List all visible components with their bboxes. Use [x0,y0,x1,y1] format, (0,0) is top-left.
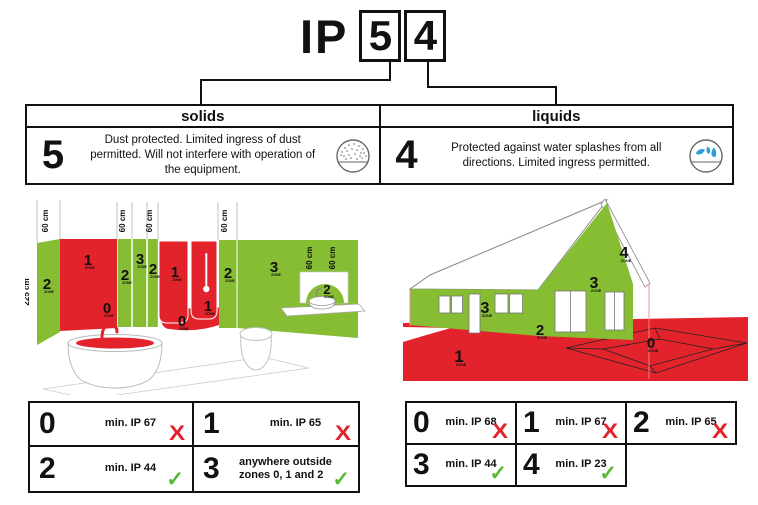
measure-label: 60 cm [41,210,50,233]
measure-label: 60 cm [220,210,229,233]
connector-line [200,79,202,105]
title-solids-digit-box: 5 [359,10,401,62]
allowed-mark: ✓ [332,469,350,490]
zone-caption: ZONE [456,363,467,367]
table-cell: 3 anywhere outside zones 0, 1 and 2 ✓ [194,447,358,491]
not-allowed-mark: X [712,421,728,442]
toilet-seat [240,328,272,341]
zone-number: 3 [203,452,233,486]
bathroom-ip-table: 0 min. IP 67 X 1 min. IP 65 X 2 min. IP … [28,401,360,493]
table-cell: 1 min. IP 65 X [194,403,358,447]
ratings-table: solids 5 Dust protected. Limited ingress… [25,104,734,185]
zone-number: 0 [413,406,439,440]
zone-caption: ZONE [104,314,114,318]
allowed-mark: ✓ [166,469,184,490]
bathtub-water [76,338,154,349]
measure-label: 60 cm [305,247,314,270]
zone-caption: ZONE [150,275,160,279]
page-title: IP 5 4 [300,8,446,64]
connector-line [389,62,391,80]
solids-description: Dust protected. Limited ingress of dust … [79,133,327,177]
not-allowed-mark: X [169,423,185,444]
liquids-digit: 4 [381,133,433,178]
dust-circle-icon [327,136,379,176]
measure-label: 60 cm [145,210,154,233]
zone-caption: ZONE [591,289,602,293]
solids-digit: 5 [27,133,79,178]
zone2-strip [148,239,158,327]
zone-number: 3 [413,448,439,482]
solids-header: solids [27,106,379,128]
zone-caption: ZONE [172,278,182,282]
zone-caption: ZONE [537,336,548,340]
zone-caption: ZONE [621,259,632,263]
measure-label: 60 cm [328,247,337,270]
connector-line [555,86,557,105]
zone-caption: ZONE [85,266,95,270]
solids-body: 5 Dust protected. Limited ingress of dus… [27,128,379,183]
allowed-mark: ✓ [599,463,617,484]
zone-number: 2 [39,452,69,486]
shower-panel [159,241,188,323]
zone2-strip-right [219,240,237,328]
connector-line [427,86,557,88]
zone-caption: ZONE [122,281,132,285]
ip-requirement: anywhere outside zones 0, 1 and 2 [233,456,346,482]
table-cell: 0 min. IP 67 X [30,403,194,447]
bathroom-zones-diagram: 60 cm 60 cm 60 cm 60 cm 60 cm 60 cm 225 … [25,197,390,395]
liquids-description: Protected against water splashes from al… [433,141,681,170]
liquids-body: 4 Protected against water splashes from … [381,128,733,183]
shower-head [203,286,209,292]
zone-caption: ZONE [225,279,235,283]
liquids-section: liquids 4 Protected against water splash… [381,106,733,183]
water-splash-icon [680,136,732,176]
not-allowed-mark: X [335,423,351,444]
ip54-infographic: IP 5 4 solids 5 Dust protected. Limited … [0,0,758,505]
zone-number: 0 [39,407,69,441]
height-label: 225 cm [25,278,31,305]
zone-number: 2 [633,406,659,440]
table-cell: 4 min. IP 23 ✓ [515,443,627,487]
zone-caption: ZONE [44,290,54,294]
zone-caption: ZONE [648,349,659,353]
not-allowed-mark: X [602,421,618,442]
zone-caption: ZONE [205,312,215,316]
zone-caption: ZONE [137,265,147,269]
connector-line [427,62,429,87]
measure-label: 60 cm [118,210,127,233]
table-cell: 0 min. IP 68 X [405,401,517,445]
outdoor-ip-table: 0 min. IP 68 X 1 min. IP 67 X 2 min. IP … [405,401,737,487]
solids-section: solids 5 Dust protected. Limited ingress… [27,106,381,183]
table-row: 0 min. IP 68 X 1 min. IP 67 X 2 min. IP … [405,401,737,445]
not-allowed-mark: X [492,421,508,442]
allowed-mark: ✓ [489,463,507,484]
zone-number: 4 [523,448,549,482]
shower-head-bar [205,253,207,286]
zone-caption: ZONE [324,295,334,299]
zone-caption: ZONE [271,273,281,277]
table-cell: 1 min. IP 67 X [515,401,627,445]
title-liquids-digit-box: 4 [404,10,446,62]
zone-caption: ZONE [179,327,189,331]
zone-caption: ZONE [482,314,493,318]
connector-line [200,79,391,81]
table-cell: 3 min. IP 44 ✓ [405,443,517,487]
zone-number: 1 [523,406,549,440]
table-cell: 2 min. IP 65 X [625,401,737,445]
table-row: 3 min. IP 44 ✓ 4 min. IP 23 ✓ [405,445,737,487]
house-zones-diagram: 1 ZONE 2 ZONE 3 ZONE 3 ZONE 4 ZONE 0 ZON… [403,195,748,393]
title-ip-prefix: IP [300,9,348,64]
table-cell: 2 min. IP 44 ✓ [30,447,194,491]
liquids-header: liquids [381,106,733,128]
zone-number: 1 [203,407,233,441]
